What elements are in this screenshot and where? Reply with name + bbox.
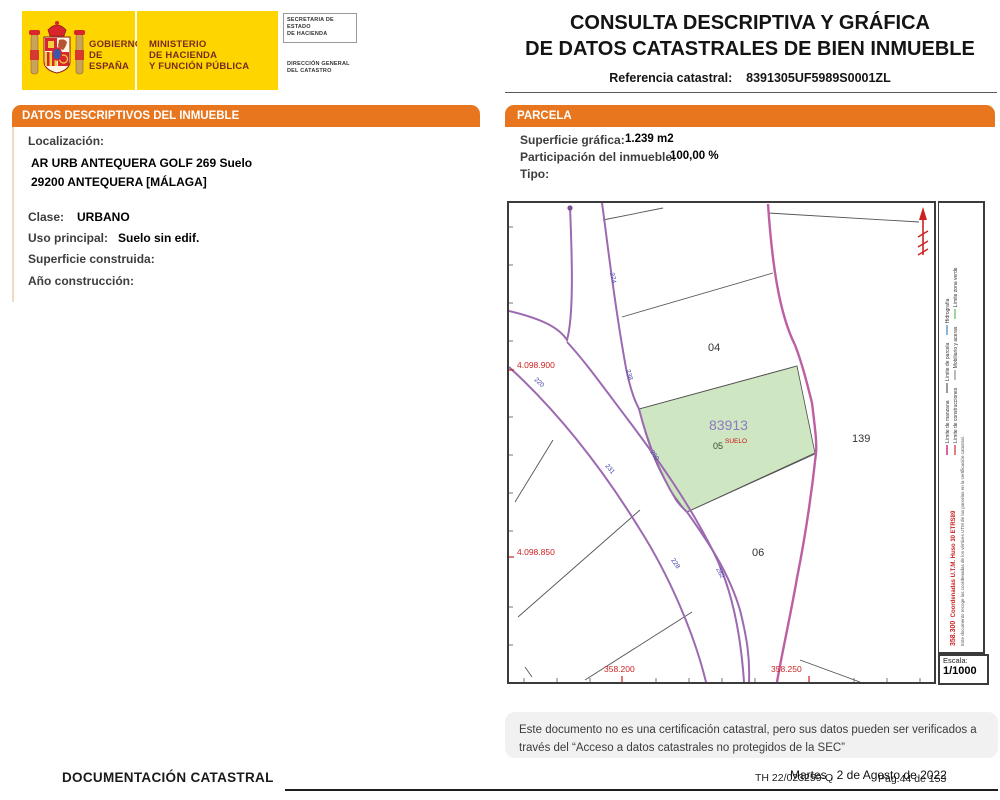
utm-x-coordinate-1: 358.200 bbox=[604, 664, 635, 674]
tipo-label: Tipo: bbox=[520, 167, 549, 181]
page-title-line2: DE DATOS CATASTRALES DE BIEN INMUEBLE bbox=[505, 38, 995, 61]
disclaimer-line2: través del “Acceso a datos catastrales n… bbox=[519, 739, 998, 757]
north-arrow-icon bbox=[918, 207, 928, 255]
road-label-231: 231 bbox=[603, 463, 616, 476]
utm-y-coordinate-2: 4.098.850 bbox=[517, 547, 555, 557]
document-date: Martes , 2 de Agosto de 2022 bbox=[790, 768, 947, 782]
address-line1: AR URB ANTEQUERA GOLF 269 Suelo bbox=[31, 156, 252, 170]
participacion-value: 100,00 % bbox=[670, 150, 719, 162]
gobierno-logo-box: GOBIERNODE ESPAÑA bbox=[22, 11, 135, 90]
legend-swatch-parcela bbox=[946, 383, 948, 393]
localizacion-label: Localización: bbox=[28, 134, 104, 148]
legend-swatch-mobiliario bbox=[954, 370, 956, 380]
secretaria-box: SECRETARIA DE ESTADO DE HACIENDA bbox=[283, 13, 357, 43]
address-line2: 29200 ANTEQUERA [MÁLAGA] bbox=[31, 175, 207, 189]
referencia-value: 8391305UF5989S0001ZL bbox=[746, 71, 891, 85]
referencia-label: Referencia catastral: bbox=[609, 71, 732, 85]
spain-coat-of-arms bbox=[28, 20, 86, 82]
cadastral-document-page: { "colors": { "accent_orange": "#E8761E"… bbox=[0, 0, 1000, 800]
ministerio-text: MINISTERIODE HACIENDAY FUNCIÓN PÚBLICA bbox=[149, 39, 249, 72]
highlighted-parcel-suelo-label: SUELO bbox=[725, 438, 747, 445]
direccion-catastro-text: DIRECCIÓN GENERALDEL CATASTRO bbox=[287, 61, 350, 75]
disclaimer-note: Este documento no es una certificación c… bbox=[505, 712, 998, 758]
documentacion-catastral-title: DOCUMENTACIÓN CATASTRAL bbox=[62, 770, 274, 785]
header-divider bbox=[505, 92, 997, 93]
legend-limite-parcela: Límite de parcela bbox=[945, 343, 951, 381]
cadastral-map-canvas: 04 139 06 83913 SUELO 05 4.098.900 4.098… bbox=[509, 203, 934, 682]
left-panel-border bbox=[12, 127, 14, 302]
road-label-238: 238 bbox=[624, 369, 634, 382]
scale-value: 1/1000 bbox=[943, 665, 987, 677]
highlighted-parcel-id: 83913 bbox=[709, 417, 748, 433]
road-endpoint-dot bbox=[567, 205, 572, 210]
bottom-edge-ticks bbox=[524, 678, 920, 682]
legend-limite-zona-verde: Límite zona verde bbox=[953, 267, 959, 307]
cadastral-map[interactable]: 04 139 06 83913 SUELO 05 4.098.900 4.098… bbox=[507, 201, 936, 684]
superficie-grafica-value: 1.239 m2 bbox=[625, 133, 674, 145]
legend-swatch-hidrografia bbox=[946, 325, 948, 335]
road-label-220: 220 bbox=[533, 376, 546, 389]
utm-system-label: Coordenadas U.T.M. Huso 30 ETRS89 bbox=[951, 511, 957, 618]
utm-side-text: 358.300 Coordenadas U.T.M. Huso 30 ETRS8… bbox=[949, 436, 966, 646]
utm-x-coordinate-3: 358.300 bbox=[950, 621, 957, 646]
ministerio-logo-box: MINISTERIODE HACIENDAY FUNCIÓN PÚBLICA bbox=[137, 11, 278, 90]
legend-swatch-manzana bbox=[946, 445, 948, 455]
map-side-note: Este documento recoge las coordenadas de… bbox=[959, 436, 966, 646]
road-label-274: 274 bbox=[608, 272, 617, 284]
clase-label: Clase: bbox=[28, 210, 64, 224]
left-edge-ticks bbox=[509, 227, 513, 645]
participacion-label: Participación del inmueble: bbox=[520, 150, 676, 164]
legend-limite-construcciones: Límite de construcciones bbox=[953, 388, 959, 443]
section-header-datos-descriptivos: DATOS DESCRIPTIVOS DEL INMUEBLE bbox=[12, 105, 480, 127]
legend-hidrografia: Hidrografía bbox=[945, 299, 951, 324]
map-legend-sidebar: Límite de manzana Límite de parcela Hidr… bbox=[938, 201, 985, 654]
clase-value: URBANO bbox=[77, 210, 130, 224]
parcel-label-06: 06 bbox=[752, 547, 764, 559]
uso-principal-value: Suelo sin edif. bbox=[118, 231, 199, 245]
uso-principal-label: Uso principal: bbox=[28, 231, 108, 245]
scale-label: Escala: bbox=[943, 657, 987, 665]
disclaimer-line1: Este documento no es una certificación c… bbox=[519, 721, 998, 739]
section-header-parcela: PARCELA bbox=[505, 105, 995, 127]
parcel-label-04: 04 bbox=[708, 342, 720, 354]
page-title-line1: CONSULTA DESCRIPTIVA Y GRÁFICA bbox=[505, 12, 995, 35]
utm-x-coordinate-2: 358.250 bbox=[771, 664, 802, 674]
road-label-228: 228 bbox=[669, 557, 681, 570]
anio-construccion-label: Año construcción: bbox=[28, 274, 134, 288]
map-scale-box: Escala: 1/1000 bbox=[938, 654, 989, 685]
utm-y-coordinate-1: 4.098.900 bbox=[517, 360, 555, 370]
superficie-construida-label: Superficie construida: bbox=[28, 252, 155, 266]
referencia-catastral: Referencia catastral: 8391305UF5989S0001… bbox=[505, 71, 995, 85]
legend-swatch-zona-verde bbox=[954, 309, 956, 319]
highlighted-parcel-floor: 05 bbox=[713, 441, 723, 451]
gobierno-text: GOBIERNODE ESPAÑA bbox=[89, 39, 142, 72]
superficie-grafica-label: Superficie gráfica: bbox=[520, 133, 625, 147]
map-legend: Límite de manzana Límite de parcela Hidr… bbox=[944, 267, 960, 461]
legend-mobiliario-aceras: Mobiliario y aceras bbox=[953, 327, 959, 369]
parcel-label-139: 139 bbox=[852, 433, 870, 445]
bottom-rule bbox=[285, 789, 998, 791]
